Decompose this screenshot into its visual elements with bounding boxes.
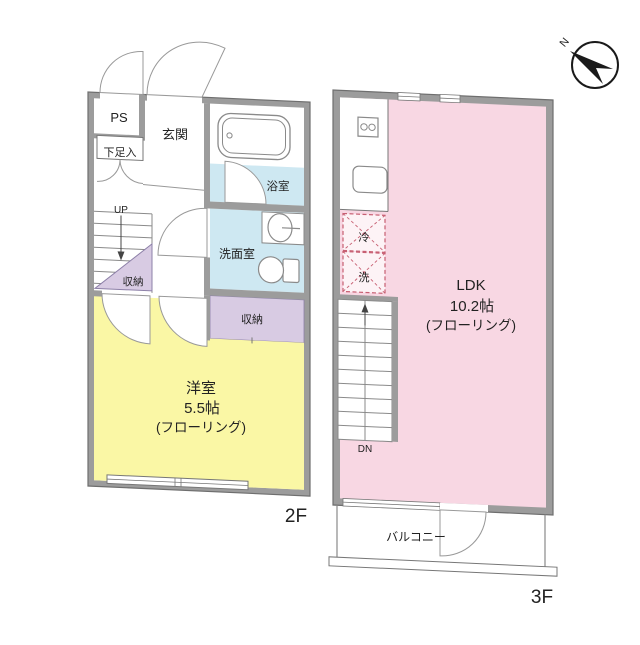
- stairs-down-3f: [338, 299, 398, 442]
- kitchen-sink-icon: [353, 166, 387, 194]
- compass-north-label: N: [558, 36, 572, 50]
- label-ldk-floor: (フローリング): [426, 318, 516, 333]
- wall-bath-left-upper: [204, 103, 210, 208]
- ps-exterior-door-swing: [100, 50, 143, 95]
- label-closet-right: 収納: [241, 313, 263, 326]
- kitchen-counter: [340, 97, 388, 211]
- label-western-room-size: 5.5帖: [184, 400, 220, 417]
- balcony-door-swing: [440, 510, 486, 558]
- floor-plan-drawing: PS 玄関 下足入 浴室 洗面室 収納 収納 UP 洋室 5.5帖 (フローリン…: [0, 0, 640, 640]
- label-western-room-floor: (フローリング): [156, 420, 246, 435]
- label-bathroom: 浴室: [267, 179, 290, 193]
- wall-bath-left-lower: [204, 257, 210, 295]
- label-western-room: 洋室: [186, 380, 216, 397]
- label-dn: DN: [358, 444, 372, 455]
- sink-icon: [262, 212, 304, 245]
- label-genkan: 玄関: [162, 127, 188, 142]
- compass-north-icon: N: [558, 36, 618, 88]
- label-washer: 洗: [359, 271, 370, 284]
- label-shoe-box: 下足入: [104, 147, 137, 159]
- bathtub-icon: [218, 113, 290, 160]
- label-up: UP: [114, 205, 128, 216]
- label-washroom: 洗面室: [219, 246, 255, 261]
- label-ps: PS: [110, 110, 128, 125]
- label-closet-under-stairs: 収納: [123, 275, 144, 288]
- label-floor-3f: 3F: [531, 587, 553, 608]
- wall-room-entry: [94, 290, 102, 296]
- toilet-icon: [259, 256, 300, 284]
- label-ldk: LDK: [456, 277, 485, 294]
- label-floor-2f: 2F: [285, 506, 307, 527]
- label-fridge: 冷: [359, 231, 370, 244]
- floor-plan-page: PS 玄関 下足入 浴室 洗面室 収納 収納 UP 洋室 5.5帖 (フローリン…: [0, 0, 640, 640]
- entrance-exterior-door-swing: [147, 40, 225, 99]
- label-ldk-size: 10.2帖: [450, 298, 494, 315]
- label-balcony: バルコニー: [386, 530, 446, 544]
- wall-ps-right: [139, 94, 145, 140]
